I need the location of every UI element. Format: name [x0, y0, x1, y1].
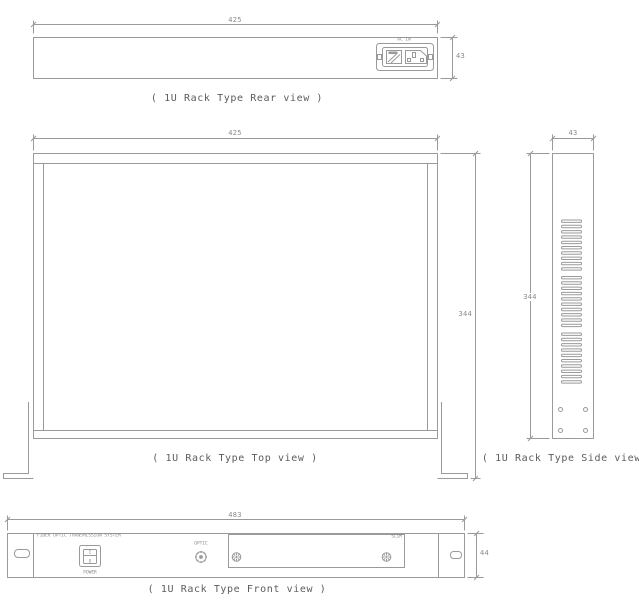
mount-slot-right [451, 552, 462, 559]
vent-slot [562, 349, 582, 351]
fuse-holder [387, 51, 402, 64]
front-width-dimension: 483 [205, 511, 265, 519]
vent-slot [562, 247, 582, 249]
vent-slot [562, 231, 582, 233]
front-panel-outline [8, 534, 465, 578]
vent-slot [562, 252, 582, 254]
brand-label: FIBER OPTIC TRANSMISSION SYSTEM [37, 532, 121, 537]
vent-slot [562, 314, 582, 316]
vent-slot [562, 360, 582, 362]
rear-height-dimension-lines [441, 35, 458, 81]
vent-slot [562, 292, 582, 294]
power-switch-on-mark: I [87, 549, 93, 554]
screw-hole [559, 429, 563, 433]
vent-slot [562, 298, 582, 300]
mount-slot-left [15, 550, 30, 558]
iec-socket [406, 51, 427, 64]
vent-slot [562, 375, 582, 377]
rack-ear-left [4, 402, 34, 479]
ac-inlet [377, 44, 434, 71]
top-chassis-inner-lines [34, 164, 438, 431]
vent-slot [562, 241, 582, 243]
ac-inlet-label: AC IN [391, 36, 417, 41]
iec-pin-right [421, 59, 424, 62]
rear-view-caption: ( 1U Rack Type Rear view ) [107, 93, 367, 104]
front-height-dimension: 44 [480, 549, 489, 557]
plate-screw-right [382, 553, 391, 562]
blank-plate-label: SLIM [379, 533, 402, 538]
screw-hole [559, 408, 563, 412]
plate-screw-left [232, 553, 241, 562]
vent-slot [562, 220, 582, 222]
top-width-dimension: 425 [205, 129, 265, 137]
rack-ear-right [438, 402, 468, 479]
vent-slot [562, 287, 582, 289]
vent-slot [562, 303, 582, 305]
vent-slot [562, 324, 582, 326]
blank-plate [229, 535, 405, 568]
ac-inlet-tab-right [429, 55, 433, 60]
vent-slot [562, 333, 582, 335]
vent-slot [562, 225, 582, 227]
vent-slot [562, 381, 582, 383]
power-switch-label: POWER [78, 569, 101, 574]
side-height-dimension: 344 [515, 293, 545, 301]
top-depth-dimension: 344 [444, 310, 472, 318]
screw-hole [584, 408, 588, 412]
technical-drawing [0, 0, 639, 605]
power-switch-off-mark: O [87, 558, 93, 563]
optic-connector [195, 551, 207, 563]
top-view [4, 135, 481, 482]
vent-slot [562, 236, 582, 238]
side-view-caption: ( 1U Rack Type Side view ) [448, 453, 639, 464]
ac-inlet-tab-left [378, 55, 382, 60]
rear-view [31, 21, 458, 82]
side-view [527, 135, 597, 442]
vent-slot [562, 277, 582, 279]
vent-slot [562, 282, 582, 284]
side-screw-holes [559, 408, 588, 433]
front-view [5, 516, 484, 581]
optic-connector-label: OPTIC [189, 540, 212, 545]
side-chassis-outline [553, 154, 594, 439]
rear-width-dimension: 425 [205, 16, 265, 24]
iec-pin-ground [413, 53, 416, 58]
vent-slot [562, 319, 582, 321]
top-chassis-outline [34, 154, 438, 439]
vent-slot [562, 262, 582, 264]
drawing-canvas: 425 43 AC IN ( 1U Rack Type Rear view ) … [0, 0, 639, 605]
vent-slot [562, 308, 582, 310]
vent-slot [562, 365, 582, 367]
iec-pin-left [408, 59, 411, 62]
vent-slot [562, 268, 582, 270]
vent-slot [562, 257, 582, 259]
vent-slot [562, 354, 582, 356]
rear-height-dimension: 43 [456, 52, 465, 60]
vent-slot [562, 344, 582, 346]
front-view-caption: ( 1U Rack Type Front view ) [107, 584, 367, 595]
vent-slots [562, 220, 582, 383]
side-width-dimension: 43 [550, 129, 596, 137]
vent-slot [562, 370, 582, 372]
top-view-caption: ( 1U Rack Type Top view ) [105, 453, 365, 464]
vent-slot [562, 338, 582, 340]
screw-hole [584, 429, 588, 433]
